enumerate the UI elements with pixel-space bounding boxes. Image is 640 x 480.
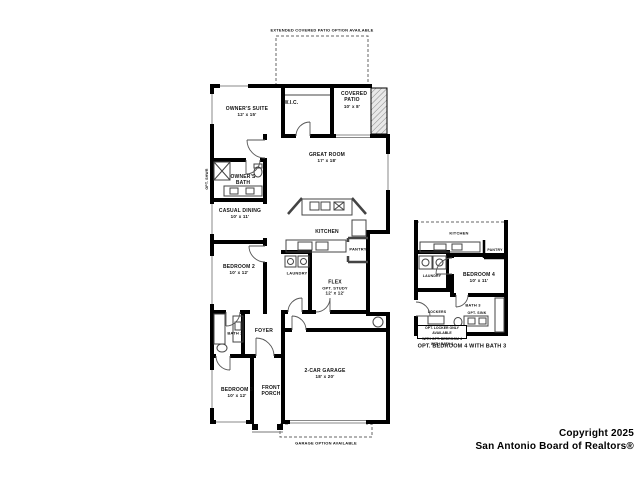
room-name: FRONT PORCH <box>260 385 282 398</box>
copyright-line-1: Copyright 2025 <box>475 427 634 440</box>
room-name: KITCHEN <box>449 231 468 236</box>
room-label-casual-dining: CASUAL DINING 10' x 11' <box>219 208 261 220</box>
room-dims: 10' x 12' <box>223 270 255 276</box>
extended-patio-note: EXTENDED COVERED PATIO OPTION AVAILABLE <box>271 28 374 33</box>
floorplan-linework <box>0 0 640 480</box>
room-name: W.I.C. <box>284 100 299 106</box>
room-name: COVERED PATIO <box>341 91 363 104</box>
inset-option-note: OPT. LOCKER ONLY AVAILABLE WITH OPT. BED… <box>417 325 467 339</box>
inset-label-bedroom-4: BEDROOM 4 10' x 11' <box>463 272 495 284</box>
room-dims: 17' x 18' <box>309 158 345 164</box>
room-name: OPT. SINK <box>468 311 487 315</box>
room-label-owners-bath: OWNER'S BATH <box>228 174 258 187</box>
room-name: LOCKERS <box>428 310 447 314</box>
note-line-1: OPT. LOCKER ONLY AVAILABLE <box>418 326 466 337</box>
room-dims: 10' x 12' <box>221 393 253 399</box>
inset-label-lockers: LOCKERS <box>428 310 447 314</box>
inset-openings <box>413 258 468 316</box>
room-name: BATH 2 <box>227 331 242 336</box>
room-name: FLEX <box>328 280 342 286</box>
room-name: BATH 3 <box>465 303 480 308</box>
room-label-foyer: FOYER <box>255 328 273 334</box>
room-dims: 18' x 20' <box>304 374 345 380</box>
room-label-great-room: GREAT ROOM 17' x 18' <box>309 152 345 164</box>
room-dims: 10' x 8' <box>341 103 363 109</box>
room-name: BEDROOM 3 <box>221 387 253 393</box>
room-dims: 10' x 11' <box>219 214 261 220</box>
inset-label-opt-sink: OPT. SINK <box>468 311 487 315</box>
inset-label-kitchen: KITCHEN <box>449 231 468 236</box>
room-label-bath-2: BATH 2 <box>227 331 242 336</box>
inset-label-pantry: PANTRY <box>487 248 502 252</box>
inset-caption: OPT. BEDROOM 4 WITH BATH 3 <box>418 344 507 351</box>
room-label-front-porch: FRONT PORCH <box>260 385 282 398</box>
room-name: LAUNDRY <box>287 271 308 276</box>
room-dims: 12' x 12' <box>322 291 348 297</box>
room-name: LAUNDRY <box>423 274 441 278</box>
room-label-laundry: LAUNDRY <box>287 271 308 276</box>
room-name: BEDROOM 4 <box>463 272 495 278</box>
room-name: BEDROOM 2 <box>223 264 255 270</box>
room-name: PANTRY <box>487 248 502 252</box>
room-label-bedroom-3: BEDROOM 3 10' x 12' <box>221 387 253 399</box>
inset-label-bath-3: BATH 3 <box>465 303 480 308</box>
room-label-bedroom-2: BEDROOM 2 10' x 12' <box>223 264 255 276</box>
room-name: KITCHEN <box>315 229 339 235</box>
room-label-covered-patio: COVERED PATIO 10' x 8' <box>341 91 363 109</box>
room-name: 2-CAR GARAGE <box>304 368 345 374</box>
room-name: CASUAL DINING <box>219 208 261 214</box>
room-label-wic: W.I.C. <box>284 100 299 106</box>
room-name: OPT. SHWR <box>205 168 209 189</box>
room-name: OWNER'S BATH <box>228 174 258 187</box>
room-name: GREAT ROOM <box>309 152 345 158</box>
inset-label-laundry: LAUNDRY <box>423 274 441 278</box>
room-dims: 10' x 11' <box>463 278 495 284</box>
room-label-kitchen: KITCHEN <box>315 229 339 235</box>
copyright-line-2: San Antonio Board of Realtors® <box>475 440 634 453</box>
room-name: FOYER <box>255 328 273 334</box>
room-name: PANTRY <box>349 247 366 252</box>
room-label-flex: FLEX OPT. STUDY 12' x 12' <box>322 280 348 297</box>
room-dims: 12' x 15' <box>226 112 268 118</box>
room-label-pantry: PANTRY <box>349 247 366 252</box>
room-label-garage: 2-CAR GARAGE 18' x 20' <box>304 368 345 380</box>
inset-door-arcs <box>416 258 468 316</box>
floor-plan-page: EXTENDED COVERED PATIO OPTION AVAILABLE … <box>0 0 640 480</box>
garage-option-note: GARAGE OPTION AVAILABLE <box>295 441 357 446</box>
room-label-opt-shwr: OPT. SHWR <box>205 168 209 189</box>
room-name: OWNER'S SUITE <box>226 106 268 112</box>
room-label-owners-suite: OWNER'S SUITE 12' x 15' <box>226 106 268 118</box>
copyright: Copyright 2025 San Antonio Board of Real… <box>475 427 634 453</box>
